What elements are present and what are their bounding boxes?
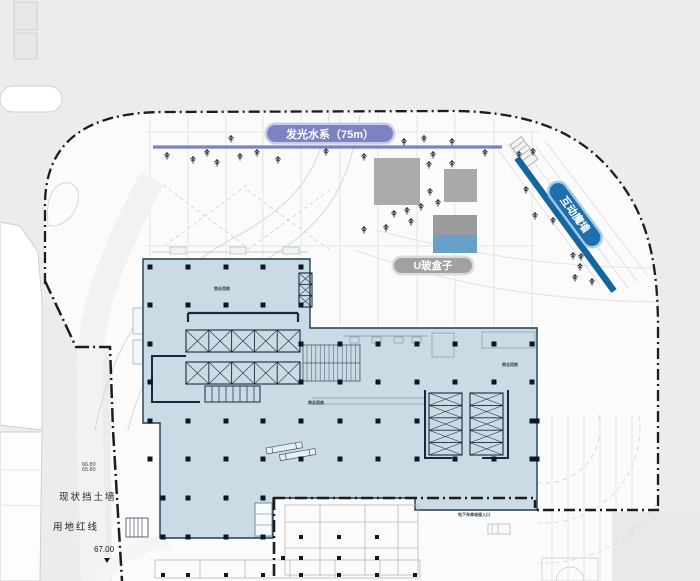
column-marker <box>299 265 304 270</box>
plan-annotation: 地下车库坡道入口 <box>458 512 490 518</box>
column-marker <box>186 419 191 424</box>
column-marker <box>338 342 343 347</box>
column-marker <box>453 342 458 347</box>
column-marker <box>261 496 266 501</box>
spot-elevation-67: 67.00 <box>94 545 114 554</box>
column-marker <box>299 457 304 462</box>
column-marker <box>337 556 341 560</box>
column-marker <box>415 380 420 385</box>
plan-annotation: 商业用房 <box>502 362 518 368</box>
column-marker <box>337 535 341 539</box>
column-marker <box>530 419 535 424</box>
column-marker <box>224 496 229 501</box>
plan-annotation: 商业用房 <box>214 286 230 292</box>
column-marker <box>299 303 304 308</box>
column-marker <box>337 573 341 577</box>
column-marker <box>261 303 266 308</box>
column-marker <box>453 380 458 385</box>
column-marker <box>492 457 497 462</box>
column-marker <box>186 265 191 270</box>
column-marker <box>299 380 304 385</box>
installation-box <box>433 235 477 253</box>
column-marker <box>186 535 191 540</box>
column-marker <box>148 419 153 424</box>
column-marker <box>492 342 497 347</box>
column-marker <box>186 496 191 501</box>
column-marker <box>453 457 458 462</box>
column-marker <box>224 419 229 424</box>
column-marker <box>148 380 153 385</box>
column-marker <box>375 573 379 577</box>
column-marker <box>148 265 153 270</box>
plan-annotation: 商业用房 <box>308 400 324 406</box>
column-marker <box>261 573 265 577</box>
column-marker <box>376 342 381 347</box>
column-marker <box>492 380 497 385</box>
column-marker <box>261 457 266 462</box>
column-marker <box>148 457 153 462</box>
column-marker <box>299 556 303 560</box>
column-marker <box>224 265 229 270</box>
column-marker <box>415 457 420 462</box>
column-marker <box>338 419 343 424</box>
spot-elevation-small: 66.80 65.80 <box>82 462 96 472</box>
column-marker <box>261 265 266 270</box>
column-marker <box>224 303 229 308</box>
column-marker <box>375 535 379 539</box>
column-marker <box>415 419 420 424</box>
column-marker <box>161 573 165 577</box>
u-glass-box-label: U玻盒子 <box>394 258 472 273</box>
column-marker <box>530 457 535 462</box>
column-marker <box>224 457 229 462</box>
column-marker <box>299 419 304 424</box>
column-marker <box>376 457 381 462</box>
site-plan-page: 发光水系（75m） U玻盒子 互动魔墙 现状挡土墙 用地红线 67.00 66.… <box>0 0 700 581</box>
column-marker <box>161 535 166 540</box>
column-marker <box>376 419 381 424</box>
column-marker <box>186 303 191 308</box>
column-marker <box>375 556 379 560</box>
column-marker <box>224 535 229 540</box>
column-marker <box>148 342 153 347</box>
column-marker <box>376 380 381 385</box>
column-marker <box>535 457 540 462</box>
column-marker <box>186 457 191 462</box>
column-marker <box>299 535 303 539</box>
column-marker <box>338 457 343 462</box>
column-marker <box>338 380 343 385</box>
column-marker <box>535 419 540 424</box>
column-marker <box>261 419 266 424</box>
column-marker <box>281 556 285 560</box>
retaining-wall-label: 现状挡土墙 <box>59 489 117 503</box>
column-marker <box>530 342 535 347</box>
column-marker <box>224 573 228 577</box>
column-marker <box>148 303 153 308</box>
column-marker <box>186 573 190 577</box>
red-line-label: 用地红线 <box>53 519 99 533</box>
column-marker <box>261 535 266 540</box>
installation-box <box>444 169 477 202</box>
column-marker <box>161 496 166 501</box>
water-system-label: 发光水系（75m） <box>267 125 393 142</box>
column-marker <box>530 380 535 385</box>
column-marker <box>415 342 420 347</box>
installation-box <box>374 158 420 205</box>
column-marker <box>299 573 303 577</box>
installation-box <box>433 215 477 235</box>
column-marker <box>299 342 304 347</box>
column-marker <box>413 573 417 577</box>
outside-area <box>612 512 700 581</box>
